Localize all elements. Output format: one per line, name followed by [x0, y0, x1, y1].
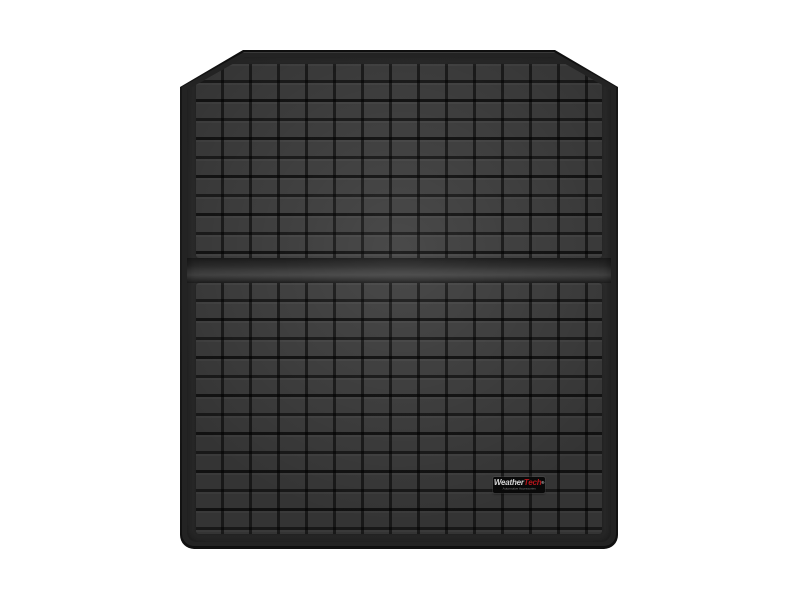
- weathertech-badge: WeatherTech® Automotive Accessories: [493, 477, 545, 493]
- badge-tagline: Automotive Accessories: [502, 487, 535, 490]
- upper-grid-section: [196, 64, 602, 258]
- lower-grid-section: [196, 283, 602, 534]
- cargo-liner-mat: WeatherTech® Automotive Accessories: [180, 50, 618, 549]
- fold-ridge: [187, 258, 611, 283]
- registered-mark: ®: [541, 480, 544, 485]
- mat-surface: WeatherTech® Automotive Accessories: [187, 57, 611, 542]
- product-photo: WeatherTech® Automotive Accessories: [0, 0, 800, 600]
